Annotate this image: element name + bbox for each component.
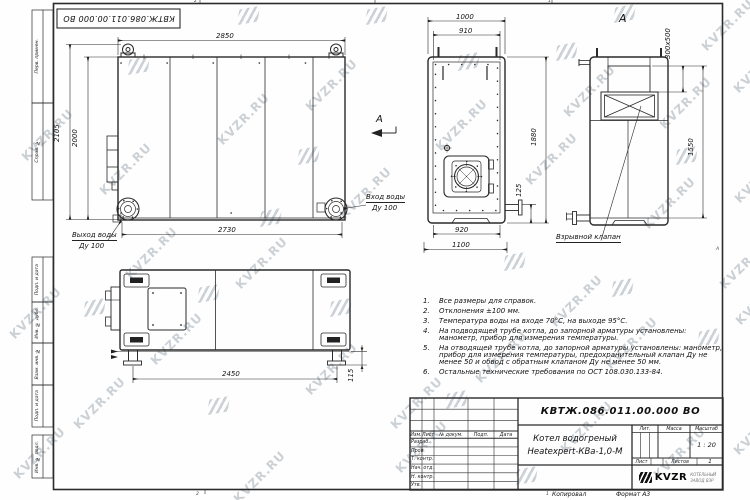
view-a: [567, 48, 708, 241]
frame-cell-label: Инв. № подл.: [35, 441, 40, 473]
note-number: 4.: [423, 328, 432, 343]
tb-row-utv: Утв.: [411, 483, 421, 488]
dim-front-width-top: 2850: [216, 33, 234, 40]
tb-mass-label: Масса: [658, 427, 690, 432]
note-item: 4.На подводящей трубе котла, до запорной…: [423, 328, 723, 343]
kvzr-logo-sub-line1: КОТЕЛЬНЫЙ: [690, 472, 716, 477]
frame-cell-podp-data-1: Подп. и дата: [32, 257, 43, 302]
note-number: 3.: [423, 318, 432, 325]
outlet-label: Выход воды: [72, 232, 117, 241]
frame-cell-label: Взам. инв. №: [35, 348, 40, 379]
dim-front-width-bottom: 2730: [218, 227, 236, 234]
frame-cell-label: Подп. и дата: [35, 390, 40, 421]
note-number: 5.: [423, 345, 432, 367]
dim-plan-supports: 2450: [222, 371, 240, 378]
note-text: Все размеры для справок.: [439, 298, 723, 305]
dim-view-a-height: 1550: [688, 138, 695, 156]
frame-cell-label: Перв. примен.: [35, 39, 40, 74]
kvzr-logo-icon: [639, 472, 652, 483]
front-view: [66, 37, 396, 240]
product-name-line1: Котел водогреный: [533, 434, 617, 444]
dim-end-bottom-inner: 920: [455, 227, 468, 234]
tb-lit-label: Лит.: [632, 427, 658, 432]
note-item: 5.На отводящей трубе котла, до запорной …: [423, 345, 723, 367]
frame-cell-inv-podl: Инв. № подл.: [32, 435, 43, 478]
inlet-size-label: Ду 100: [372, 205, 397, 212]
note-text: Остальные технические требования по ОСТ …: [439, 369, 723, 376]
dim-front-height-inner: 2000: [72, 129, 79, 147]
plan-view: [106, 270, 368, 383]
tb-header-doc: № докум.: [434, 433, 468, 438]
note-number: 6.: [423, 369, 432, 376]
explosion-valve-label: Взрывной клапан: [556, 234, 621, 243]
frame-cell-sprav-no: Справ. №: [32, 103, 43, 200]
note-text: Температура воды на входе 70°С, на выход…: [439, 318, 723, 325]
zone-mark: 2: [194, 0, 197, 5]
frame-cell-perv-primen: Перв. примен.: [32, 10, 43, 103]
dim-plan-foot: 115: [348, 368, 355, 381]
doc-number-stamp-text: КВТЖ.086.011.00.000 ВО: [63, 14, 175, 23]
section-arrow: [371, 127, 396, 138]
note-item: 1.Все размеры для справок.: [423, 298, 723, 305]
tb-header-podp: Подп.: [468, 433, 494, 438]
note-number: 1.: [423, 298, 432, 305]
note-text: Отклонения ±100 мм.: [439, 308, 723, 315]
drawing-lineart: [0, 0, 750, 500]
note-item: 2.Отклонения ±100 мм.: [423, 308, 723, 315]
view-a-title: А: [619, 13, 627, 24]
dim-view-a-chimney: 300х500: [665, 28, 672, 59]
tb-scale-label: Масштаб: [690, 427, 723, 432]
tb-sheet-label: Лист: [632, 460, 651, 465]
tb-sheets-value: 1: [697, 459, 723, 465]
frame-cell-podp-data-2: Подп. и дата: [32, 385, 43, 427]
tb-row-nkontr: Н. контр.: [411, 475, 434, 480]
frame-cell-vzam-inv: Взам. инв. №: [32, 343, 43, 385]
tb-header-data: Дата: [494, 433, 518, 438]
note-item: 6.Остальные технические требования по ОС…: [423, 369, 723, 376]
notes-list: 1.Все размеры для справок. 2.Отклонения …: [423, 298, 723, 379]
tb-scale-value: 1 : 20: [690, 441, 723, 449]
note-item: 3.Температура воды на входе 70°С, на вых…: [423, 318, 723, 325]
tb-row-razrab: Разраб.: [411, 440, 430, 445]
tb-row-prov: Пров.: [411, 449, 425, 454]
section-arrow-label: А: [376, 115, 383, 125]
drawing-sheet: KVZR.RUKVZR.RUKVZR.RUKVZR.RUKVZR.RUKVZR.…: [0, 0, 750, 500]
manufacturer-logo: KVZR КОТЕЛЬНЫЙ ЗАВОД ВЗР: [633, 466, 722, 489]
note-text: На отводящей трубе котла, до запорной ар…: [439, 345, 723, 367]
copied-label: Копировал: [552, 492, 586, 498]
tb-header-list: Лист: [422, 433, 434, 438]
dim-front-height-outer: 2105: [54, 124, 61, 142]
tb-row-nachotd: Нач. отд.: [411, 466, 434, 471]
tb-header-izm: Изм.: [410, 433, 422, 438]
frame-cell-label: Подп. и дата: [35, 264, 40, 295]
zone-mark: 2: [196, 493, 199, 498]
doc-number-stamp: КВТЖ.086.011.00.000 ВО: [57, 9, 180, 28]
title-block-doc-number: КВТЖ.086.011.00.000 ВО: [518, 398, 723, 425]
dim-end-nozzle: 125: [516, 183, 523, 196]
zone-mark: 1: [548, 0, 551, 5]
frame-cell-inv-dubl: Инв. № дубл.: [32, 302, 43, 343]
frame-cell-label: Справ. №: [35, 140, 40, 163]
kvzr-logo-text: KVZR: [655, 472, 687, 483]
frame-cell-label: Инв. № дубл.: [35, 307, 40, 339]
dim-end-bottom-outer: 1100: [452, 242, 470, 249]
title-block-product-name: Котел водогреный Heatexpert-КВа-1,0-М: [518, 426, 632, 464]
tb-row-tkontr: Т. контр.: [411, 457, 433, 462]
zone-mark: А: [716, 248, 719, 253]
kvzr-logo-subtitle: КОТЕЛЬНЫЙ ЗАВОД ВЗР: [690, 472, 716, 483]
tb-sheets-label: Листов: [663, 460, 697, 465]
dim-end-height: 1880: [531, 128, 538, 146]
kvzr-logo-sub-line2: ЗАВОД ВЗР: [690, 478, 716, 483]
format-label: Формат А3: [616, 492, 650, 498]
inlet-label: Вход воды: [366, 194, 405, 203]
outlet-size-label: Ду 100: [79, 243, 104, 250]
note-number: 2.: [423, 308, 432, 315]
zone-mark: 1: [546, 493, 549, 498]
product-name-line2: Heatexpert-КВа-1,0-М: [527, 447, 622, 457]
dim-end-top-outer: 1000: [456, 14, 474, 21]
note-text: На подводящей трубе котла, до запорной а…: [439, 328, 723, 343]
dim-end-top-inner: 910: [459, 28, 472, 35]
